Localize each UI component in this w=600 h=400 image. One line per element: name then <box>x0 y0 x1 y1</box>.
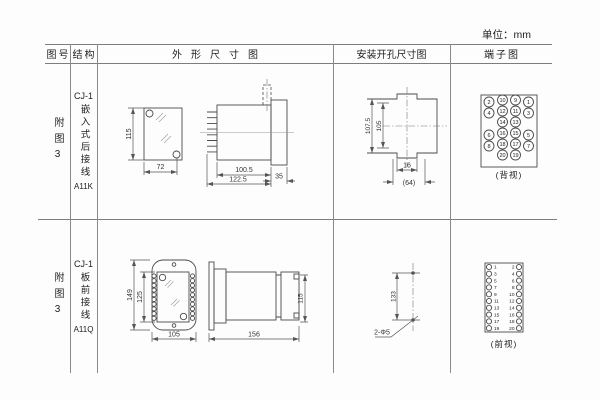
svg-text:7: 7 <box>494 285 497 291</box>
svg-text:12: 12 <box>509 299 515 305</box>
model-code-row1: A11K <box>74 182 93 191</box>
dim-body-height-front-row2: 125 <box>137 291 144 303</box>
model-name-row1: CJ-1 <box>74 91 93 101</box>
svg-text:7: 7 <box>527 144 530 150</box>
svg-text:10: 10 <box>499 98 505 104</box>
svg-text:19: 19 <box>494 326 500 332</box>
svg-text:1: 1 <box>494 265 497 271</box>
svg-text:19: 19 <box>512 153 518 159</box>
structure-cell-row2: CJ-1 板前接线 A11Q <box>70 219 97 373</box>
svg-text:6: 6 <box>512 278 515 284</box>
figure-number-cell-row1: 附图3 <box>45 63 70 219</box>
outline-drawing-row1: 115 72 100.5 122.5 35 <box>97 63 333 219</box>
svg-text:8: 8 <box>512 285 515 291</box>
mounting-type-row2: 板前接线 <box>77 272 91 322</box>
svg-text:2: 2 <box>512 265 515 271</box>
structure-cell-row1: CJ-1 嵌入式后接线 A11K <box>70 63 97 219</box>
svg-text:3: 3 <box>527 111 530 117</box>
svg-text:8: 8 <box>487 144 490 150</box>
install-drawing-row1: 107.5 105 16 (64) <box>333 63 450 219</box>
header-install-hole-dimensions: 安装开孔尺寸图 <box>333 44 450 63</box>
dim-front-width-row2: 105 <box>168 332 180 339</box>
svg-text:6: 6 <box>487 133 490 139</box>
svg-text:4: 4 <box>487 111 490 117</box>
view-label-front: (前视) <box>491 339 518 349</box>
mounting-type-row1: 嵌入式后接线 <box>77 104 91 179</box>
dim-front-width-row1: 72 <box>157 164 165 171</box>
manual-page: 单位：mm 图号 结构 外形尺寸图 安装开孔尺寸图 端子图 附图3 CJ-1 嵌… <box>0 0 600 400</box>
side-view-row2: 156 115 <box>209 262 308 342</box>
figure-number-row1: 附图3 <box>50 117 65 166</box>
svg-text:17: 17 <box>512 142 518 148</box>
terminal-diagram-front: 1357911131517192468101214161820 (前视) <box>450 219 552 373</box>
svg-text:16: 16 <box>499 131 505 137</box>
terminal-grid-back: 2109141211314136161558181772019 <box>484 95 534 160</box>
glass-hatch-marks <box>156 113 171 143</box>
svg-text:3: 3 <box>494 271 497 277</box>
front-view-row2: 149 125 105 <box>127 260 196 342</box>
dim-notch-width: 16 <box>403 163 411 170</box>
unit-label: 单位：mm <box>482 27 531 42</box>
mounting-hole-top <box>411 271 415 275</box>
svg-text:5: 5 <box>527 133 530 139</box>
svg-text:15: 15 <box>512 131 518 137</box>
svg-text:20: 20 <box>509 326 515 332</box>
terminal-grid-front: 1357911131517192468101214161820 <box>486 264 521 331</box>
figure-number-row2: 附图3 <box>50 272 65 321</box>
header-outline-dimensions: 外形尺寸图 <box>97 44 333 63</box>
dim-cutout-width: (64) <box>403 180 415 187</box>
svg-text:14: 14 <box>499 120 505 126</box>
side-view-row1: 100.5 122.5 35 <box>200 79 295 187</box>
svg-text:12: 12 <box>499 109 505 115</box>
install-drawing-row2: 133 2-Φ5 <box>333 219 450 373</box>
svg-text:11: 11 <box>494 299 499 305</box>
svg-text:11: 11 <box>513 109 519 115</box>
dim-body-length-row1: 100.5 <box>235 167 253 174</box>
dim-side-height-row2: 115 <box>298 293 305 304</box>
svg-text:9: 9 <box>494 292 497 298</box>
dim-cutout-outer-height: 107.5 <box>365 117 372 134</box>
svg-text:14: 14 <box>509 305 515 311</box>
dim-total-length-row1: 122.5 <box>229 177 247 184</box>
outline-drawing-row2: 149 125 105 156 115 <box>97 219 333 373</box>
dim-plate-height-row2: 149 <box>127 289 134 301</box>
svg-text:17: 17 <box>494 319 500 325</box>
front-view-row1: 115 72 <box>126 108 182 175</box>
terminal-pins <box>207 112 217 152</box>
svg-text:5: 5 <box>494 278 497 284</box>
dim-hole-spacing: 133 <box>391 291 398 302</box>
header-figure-number: 图号 <box>45 44 70 63</box>
svg-text:18: 18 <box>509 319 515 325</box>
header-structure: 结构 <box>70 44 97 63</box>
svg-text:1: 1 <box>527 100 530 106</box>
svg-text:9: 9 <box>514 98 517 104</box>
dim-cutout-inner-height: 105 <box>376 120 383 131</box>
svg-text:2: 2 <box>487 100 490 106</box>
figure-number-cell-row2: 附图3 <box>45 219 70 373</box>
svg-text:16: 16 <box>509 312 515 318</box>
view-label-back: (背视) <box>496 170 523 180</box>
hole-spec-label: 2-Φ5 <box>374 330 390 337</box>
svg-text:10: 10 <box>509 292 515 298</box>
terminal-screw-columns <box>152 274 195 321</box>
svg-text:18: 18 <box>499 142 505 148</box>
svg-text:20: 20 <box>499 153 505 159</box>
dim-total-length-row2: 156 <box>248 332 260 339</box>
dim-front-height-row1: 115 <box>126 128 133 139</box>
svg-text:4: 4 <box>512 271 515 277</box>
svg-text:15: 15 <box>494 312 500 318</box>
terminal-diagram-back: 2109141211314136161558181772019 (背视) <box>450 63 552 219</box>
svg-text:13: 13 <box>494 305 500 311</box>
header-terminal-diagram: 端子图 <box>450 44 552 63</box>
svg-text:13: 13 <box>512 120 518 126</box>
model-name-row2: CJ-1 <box>74 259 93 269</box>
model-code-row2: A11Q <box>74 325 94 334</box>
glass-hatch-marks <box>165 280 180 307</box>
dim-flange-depth-row1: 35 <box>275 174 283 181</box>
